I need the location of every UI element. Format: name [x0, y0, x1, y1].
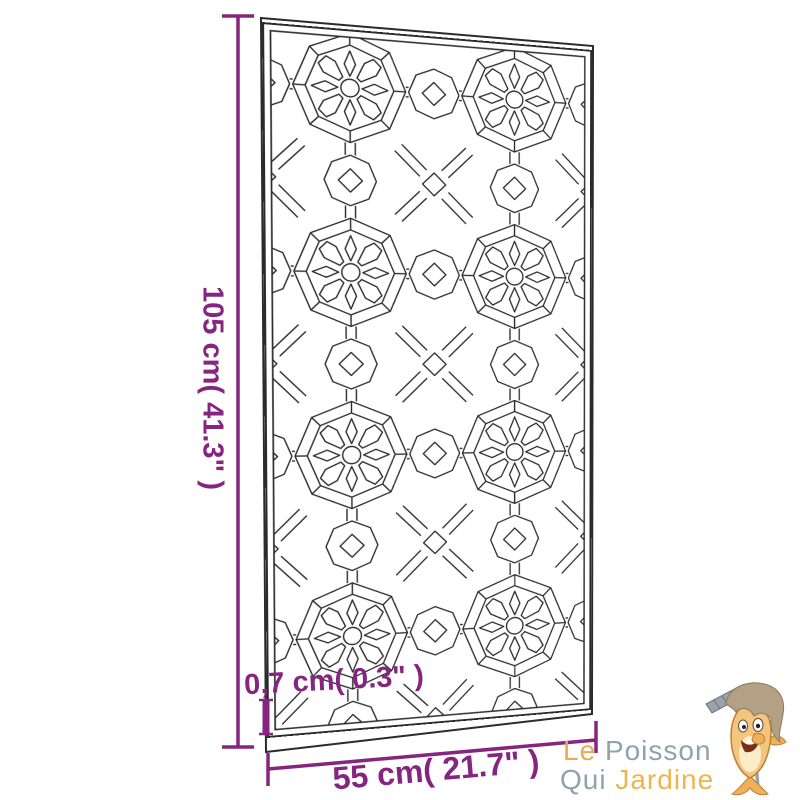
logo-line-1: Le Poisson [563, 735, 712, 767]
logo-line-2: Qui Jardine [560, 764, 714, 796]
height-dimension-label: 105 cm( 41.3" ) [196, 286, 229, 490]
logo-word-poisson: Poisson [605, 735, 712, 766]
fish-mascot-icon [698, 676, 800, 800]
logo-word-le: Le [563, 735, 596, 766]
logo-word-qui: Qui [560, 764, 607, 795]
fish-gardener-mascot [698, 676, 800, 800]
